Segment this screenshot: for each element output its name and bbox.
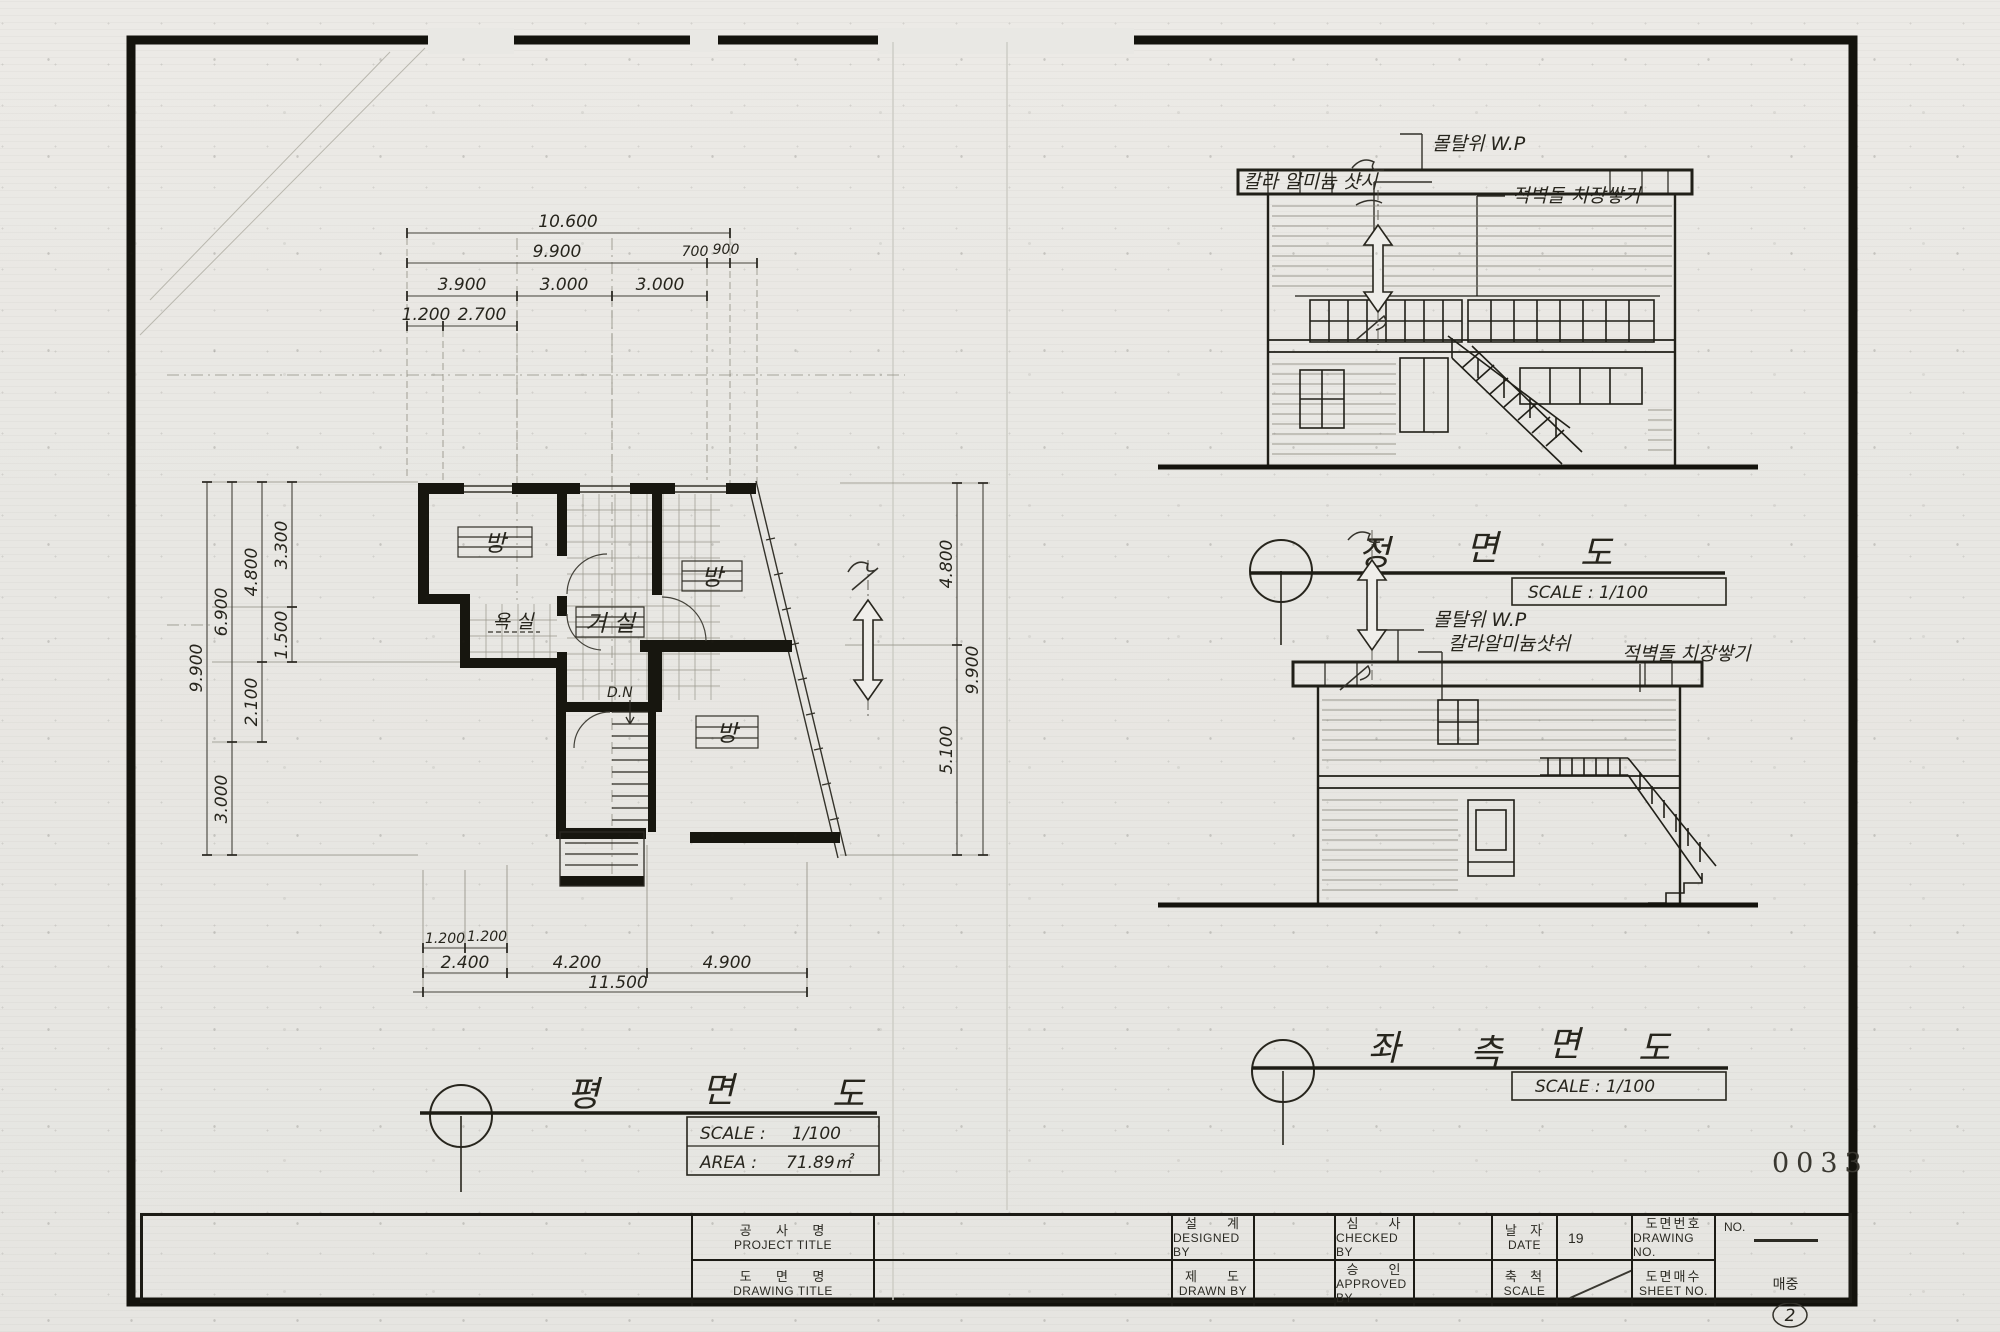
sheet-border [131, 28, 1853, 1302]
sheet-no-ko: 도면매수 [1646, 1269, 1702, 1284]
drawing-no-en: DRAWING NO. [1633, 1231, 1714, 1259]
designed-by-value [1255, 1216, 1336, 1261]
corner-note-number: 2 [1785, 1306, 1796, 1326]
dimension-label: 2.100 [242, 678, 262, 727]
dimension-label: 3.000 [540, 275, 589, 295]
side-title-char: 면 [1548, 1025, 1584, 1065]
plan-direction-arrow [848, 560, 882, 720]
corner-note: 2 [1773, 1303, 1807, 1327]
side-scale-box: SCALE : 1/100 [1512, 1072, 1726, 1100]
plan-dimensions-right: 4.800 5.100 9.900 [937, 483, 988, 855]
dimension-label: 900 [713, 242, 740, 258]
dimension-label: 4.800 [242, 548, 262, 597]
sheet-no-value-text: 매중 [1773, 1274, 1799, 1294]
sheet-no-en: SHEET NO. [1639, 1284, 1708, 1298]
plan-dimensions-bottom: 1.200 1.200 2.400 4.200 4.900 11.500 [413, 929, 807, 997]
drawing-title-label: 도 면 명 DRAWING TITLE [693, 1261, 875, 1306]
side-upper-window [1438, 700, 1628, 775]
title-block: 공 사 명 PROJECT TITLE 설 계 DESIGNED BY 심 사 … [140, 1213, 1852, 1303]
drawing-title-ko: 도 면 명 [740, 1269, 827, 1284]
side-body [1318, 686, 1680, 903]
drawing-no-value: NO. [1716, 1216, 1855, 1261]
plan-stairs [560, 700, 648, 886]
plan-dimensions-left: 9.900 6.900 3.000 4.800 2.100 3.300 1.50… [187, 482, 297, 855]
plan-dimensions-top: 10.600 9.900 700 900 3.900 3.000 3.000 1… [402, 212, 757, 331]
project-title-value [875, 1216, 1173, 1261]
date-value-text: 19 [1568, 1230, 1584, 1246]
drawing-no-ko: 도면번호 [1646, 1216, 1702, 1231]
annotation-sash: 칼라 알미늄 샷시 [1243, 171, 1379, 193]
dimension-label: 700 [682, 244, 709, 260]
approved-by-ko: 승 인 [1347, 1262, 1403, 1277]
plan-title-char: 평 [567, 1075, 603, 1115]
plan-scale-value: 1/100 [792, 1124, 841, 1144]
approved-by-value [1415, 1261, 1493, 1306]
dimension-label: 4.900 [703, 953, 752, 973]
drawn-by-label: 제 도 DRAWN BY [1173, 1261, 1255, 1306]
date-en: DATE [1508, 1238, 1541, 1252]
title-block-empty-cell [143, 1216, 693, 1306]
drawing-title-en: DRAWING TITLE [733, 1284, 833, 1298]
floor-plan: 10.600 9.900 700 900 3.900 3.000 3.000 1… [167, 212, 990, 997]
front-scale-text: SCALE : 1/100 [1528, 583, 1648, 603]
stair-direction-label: D.N [607, 685, 633, 701]
room-label-bath: 욕 실 [493, 611, 536, 633]
checked-by-ko: 심 사 [1347, 1216, 1403, 1231]
dimension-label: 3.900 [438, 275, 487, 295]
annotation-sash: 칼라알미늄샷쉬 [1448, 633, 1572, 655]
scale-value [1558, 1261, 1633, 1306]
dimension-label: 1.200 [402, 305, 451, 325]
drawn-by-value [1255, 1261, 1336, 1306]
front-scale-box: SCALE : 1/100 [1512, 578, 1726, 605]
front-exterior-stair [1448, 336, 1582, 464]
dimension-label: 6.900 [212, 588, 232, 637]
designed-by-ko: 설 계 [1185, 1216, 1241, 1231]
dimension-label: 2.700 [458, 305, 507, 325]
stamp-number: 0033 [1772, 1148, 1869, 1179]
side-scale-text: SCALE : 1/100 [1535, 1077, 1655, 1097]
checked-by-en: CHECKED BY [1336, 1231, 1413, 1259]
floor-plan-title: 평 면 도 SCALE : 1/100 AREA : 71.89㎡ [420, 1071, 879, 1192]
plan-title-char: 면 [702, 1071, 738, 1111]
front-title-char: 도 [1580, 534, 1614, 574]
room-label-bang3: 방 [716, 721, 740, 747]
date-label: 날 자 DATE [1493, 1216, 1558, 1261]
dimension-label: 3.000 [636, 275, 685, 295]
drawing-no-label: 도면번호 DRAWING NO. [1633, 1216, 1716, 1261]
scale-en: SCALE [1504, 1284, 1546, 1298]
side-elevation: 몰탈위 W.P 칼라알미늄샷쉬 적벽돌 치장쌓기 [1158, 530, 1758, 905]
date-value: 19 [1558, 1216, 1633, 1261]
dimension-label: 3.300 [272, 521, 292, 570]
project-title-ko: 공 사 명 [740, 1223, 827, 1238]
side-elevation-title: 좌 측 면 도 SCALE : 1/100 [1252, 1025, 1728, 1145]
plan-floor-tiles [470, 494, 720, 700]
room-label-bang2: 방 [701, 565, 725, 591]
room-label-living: 거 실 [585, 611, 636, 637]
front-elevation-annotations: 몰탈위 W.P 칼라 알미늄 샷시 적벽돌 치장쌓기 [1243, 133, 1642, 298]
dimension-label: 1.200 [425, 931, 465, 947]
dimension-label: 3.000 [212, 775, 232, 824]
dimension-label: 1.500 [272, 611, 292, 660]
front-title-char: 면 [1466, 529, 1502, 569]
blueprint-drawing: 10.600 9.900 700 900 3.900 3.000 3.000 1… [0, 0, 2000, 1332]
approved-by-label: 승 인 APPROVED BY [1336, 1261, 1415, 1306]
scale-slash-mark [1570, 1262, 1633, 1299]
plan-title-char: 도 [832, 1075, 866, 1115]
dimension-label: 4.200 [553, 953, 602, 973]
side-exterior-stair [1628, 758, 1716, 903]
dimension-label: 9.900 [963, 646, 983, 695]
room-label-bang1: 방 [484, 531, 508, 557]
annotation-wp: 몰탈위 W.P [1432, 133, 1526, 155]
dimension-label: 10.600 [538, 212, 597, 232]
scale-ko: 축 척 [1505, 1269, 1544, 1284]
date-ko: 날 자 [1505, 1223, 1544, 1238]
drawing-no-dash [1754, 1239, 1818, 1242]
checked-by-value [1415, 1216, 1493, 1261]
drawing-no-value-text: NO. [1724, 1220, 1745, 1234]
sheet-no-label: 도면매수 SHEET NO. [1633, 1261, 1716, 1306]
checked-by-label: 심 사 CHECKED BY [1336, 1216, 1415, 1261]
drawn-by-en: DRAWN BY [1179, 1284, 1247, 1298]
front-wall-hatch [1272, 206, 1672, 454]
dimension-label: 9.900 [187, 644, 207, 693]
designed-by-label: 설 계 DESIGNED BY [1173, 1216, 1255, 1261]
designed-by-en: DESIGNED BY [1173, 1231, 1253, 1259]
plan-area-value: 71.89㎡ [786, 1153, 855, 1173]
annotation-wp: 몰탈위 W.P [1433, 609, 1527, 631]
side-title-char: 측 [1470, 1033, 1504, 1073]
plan-area-label: AREA : [699, 1153, 757, 1173]
dimension-label: 2.400 [441, 953, 490, 973]
front-elevation: 몰탈위 W.P 칼라 알미늄 샷시 적벽돌 치장쌓기 [1158, 133, 1758, 467]
plan-room-labels: 방 거 실 방 방 욕 실 [458, 527, 758, 748]
approved-by-en: APPROVED BY [1336, 1277, 1413, 1305]
front-lower-openings [1300, 358, 1642, 432]
handwritten-scribble [848, 562, 878, 590]
dimension-label: 1.200 [467, 929, 507, 945]
project-title-label: 공 사 명 PROJECT TITLE [693, 1216, 875, 1261]
plan-scale-label: SCALE : [700, 1124, 766, 1144]
side-door [1468, 800, 1514, 876]
annotation-brick: 적벽돌 치장쌓기 [1512, 185, 1642, 207]
side-title-char: 도 [1638, 1029, 1672, 1069]
drawn-by-ko: 제 도 [1185, 1269, 1241, 1284]
side-title-char: 좌 [1368, 1029, 1404, 1069]
plan-scale-box: SCALE : 1/100 AREA : 71.89㎡ [687, 1117, 879, 1175]
scale-label: 축 척 SCALE [1493, 1261, 1558, 1306]
dimension-label: 5.100 [937, 726, 957, 775]
dimension-label: 11.500 [588, 973, 647, 993]
drawing-title-value [875, 1261, 1173, 1306]
project-title-en: PROJECT TITLE [734, 1238, 832, 1252]
dimension-label: 4.800 [937, 540, 957, 589]
sheet-no-value: 매중 [1716, 1261, 1855, 1306]
dimension-label: 9.900 [533, 242, 582, 262]
